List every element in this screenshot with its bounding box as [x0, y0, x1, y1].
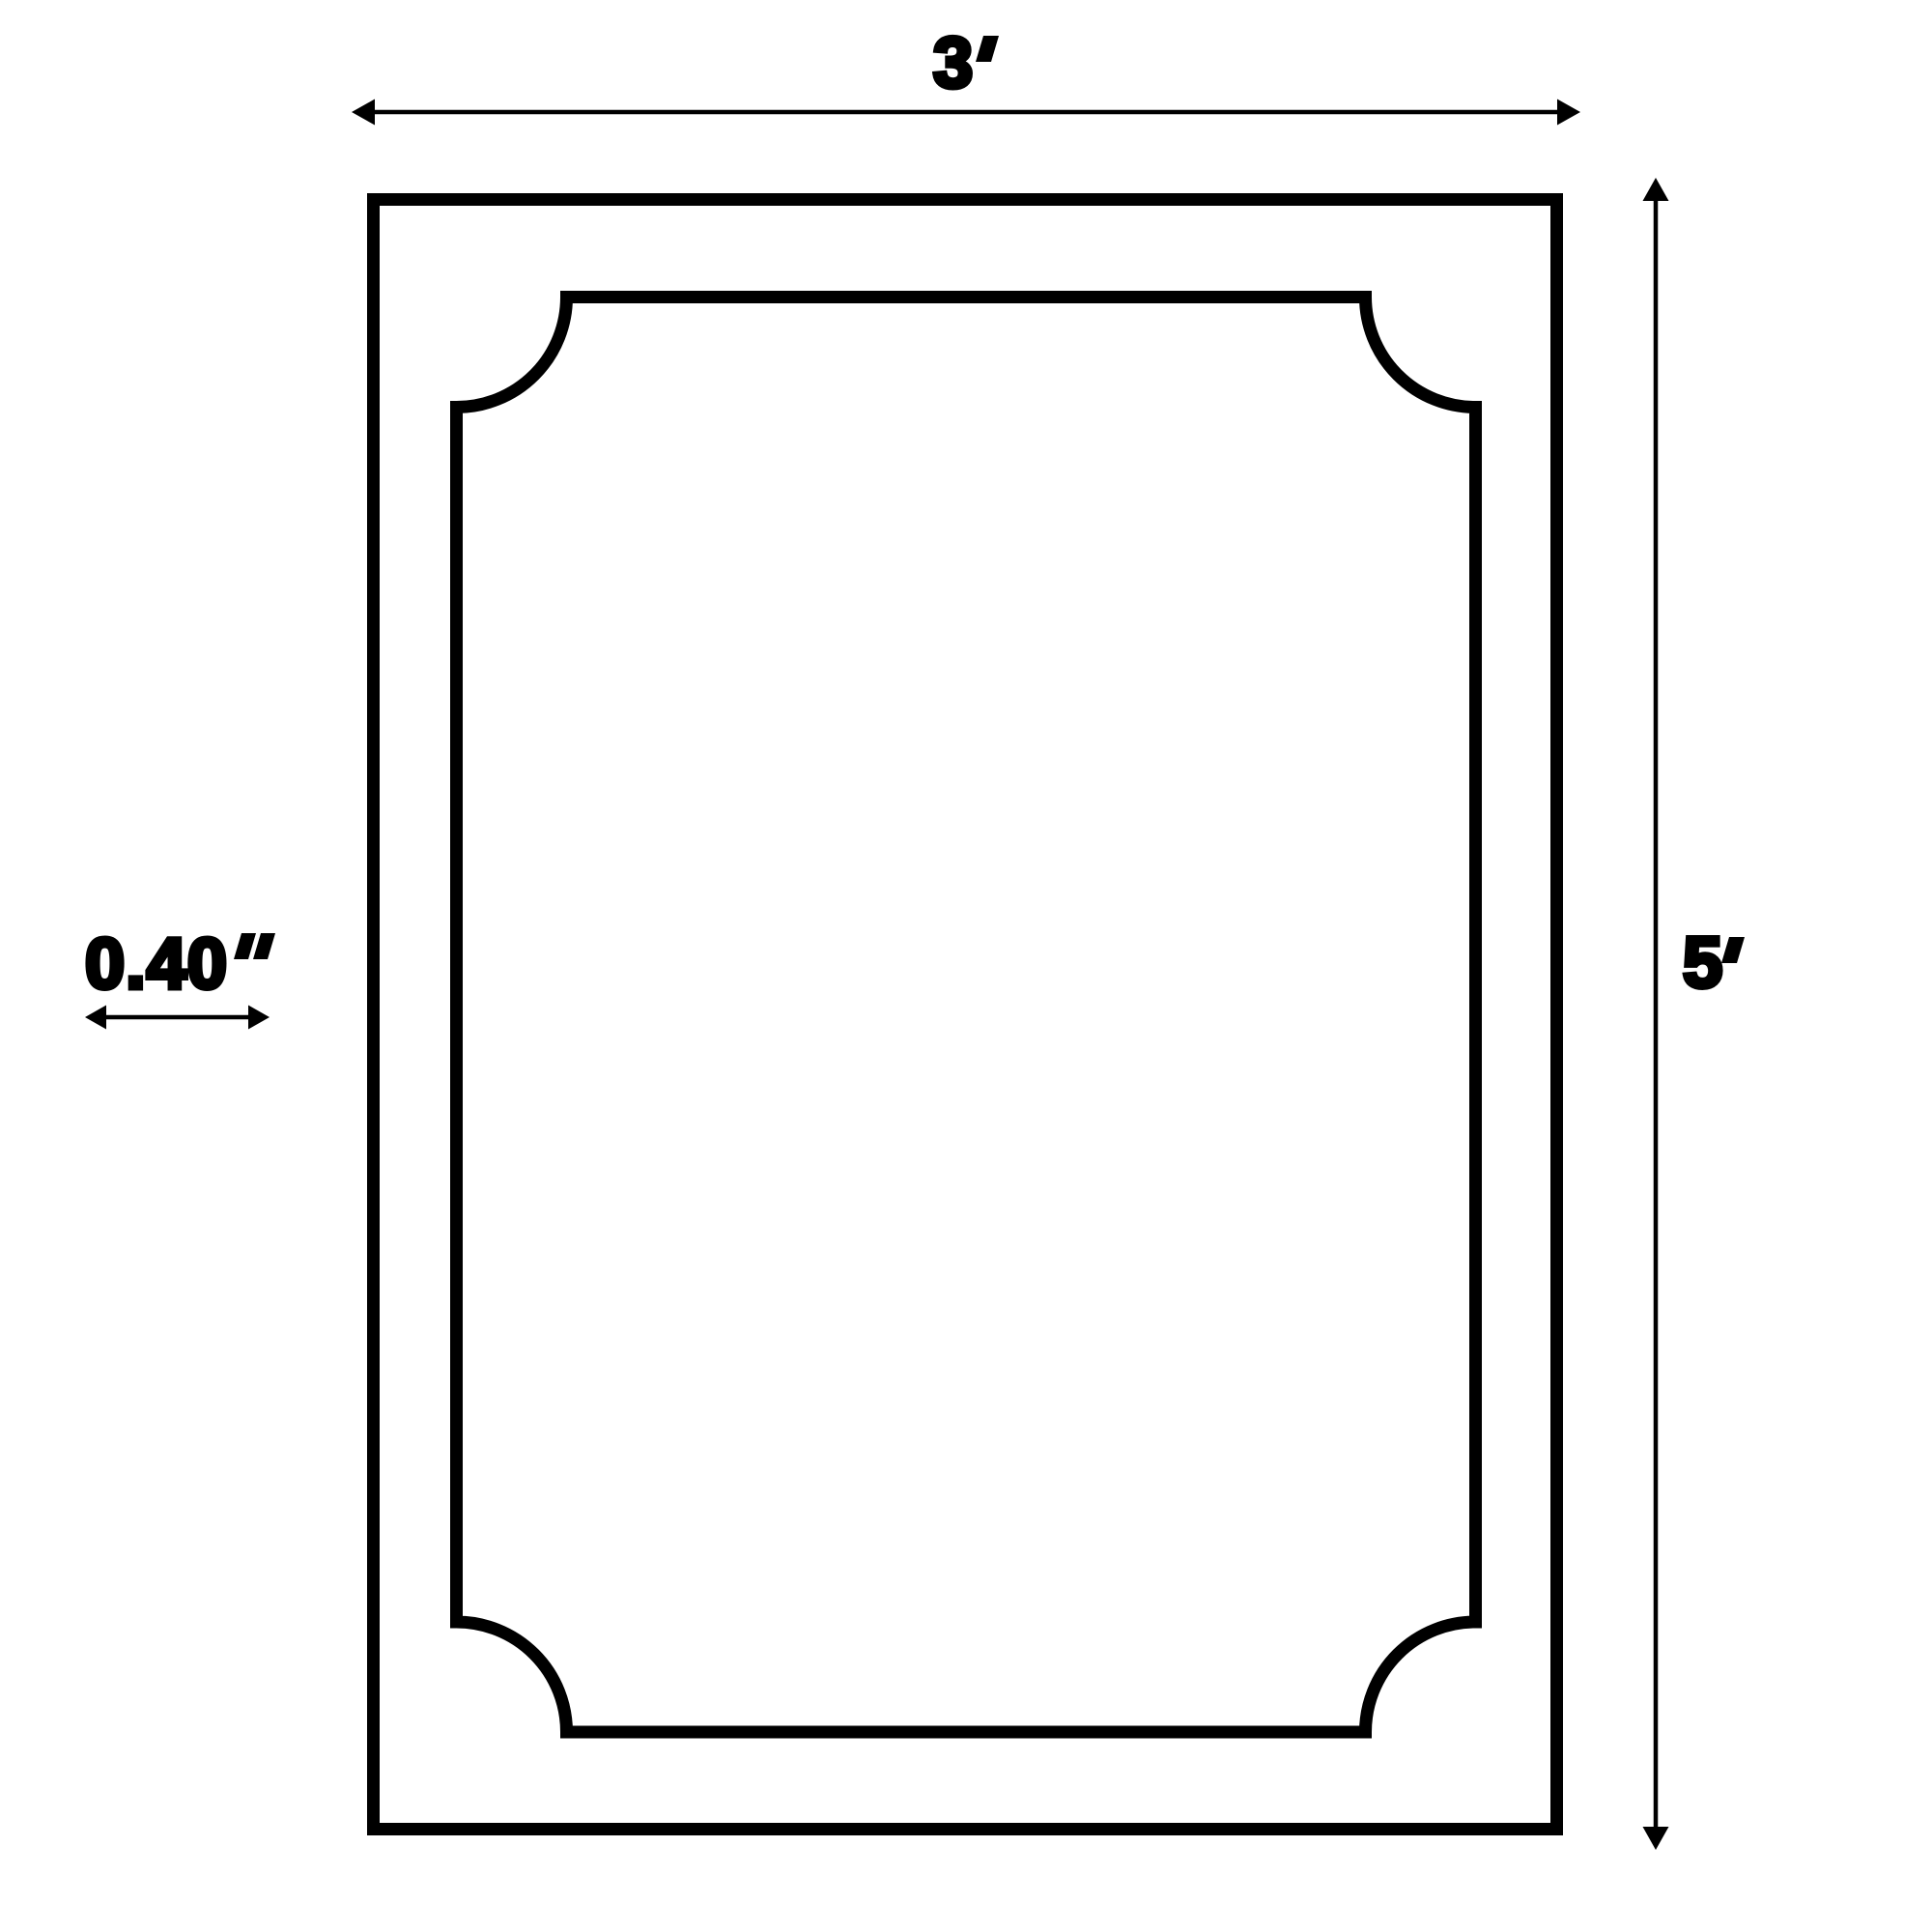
- svg-text:5: 5: [1683, 923, 1724, 1003]
- svg-text:3: 3: [933, 22, 975, 102]
- svg-text:0.40: 0.40: [85, 923, 228, 1004]
